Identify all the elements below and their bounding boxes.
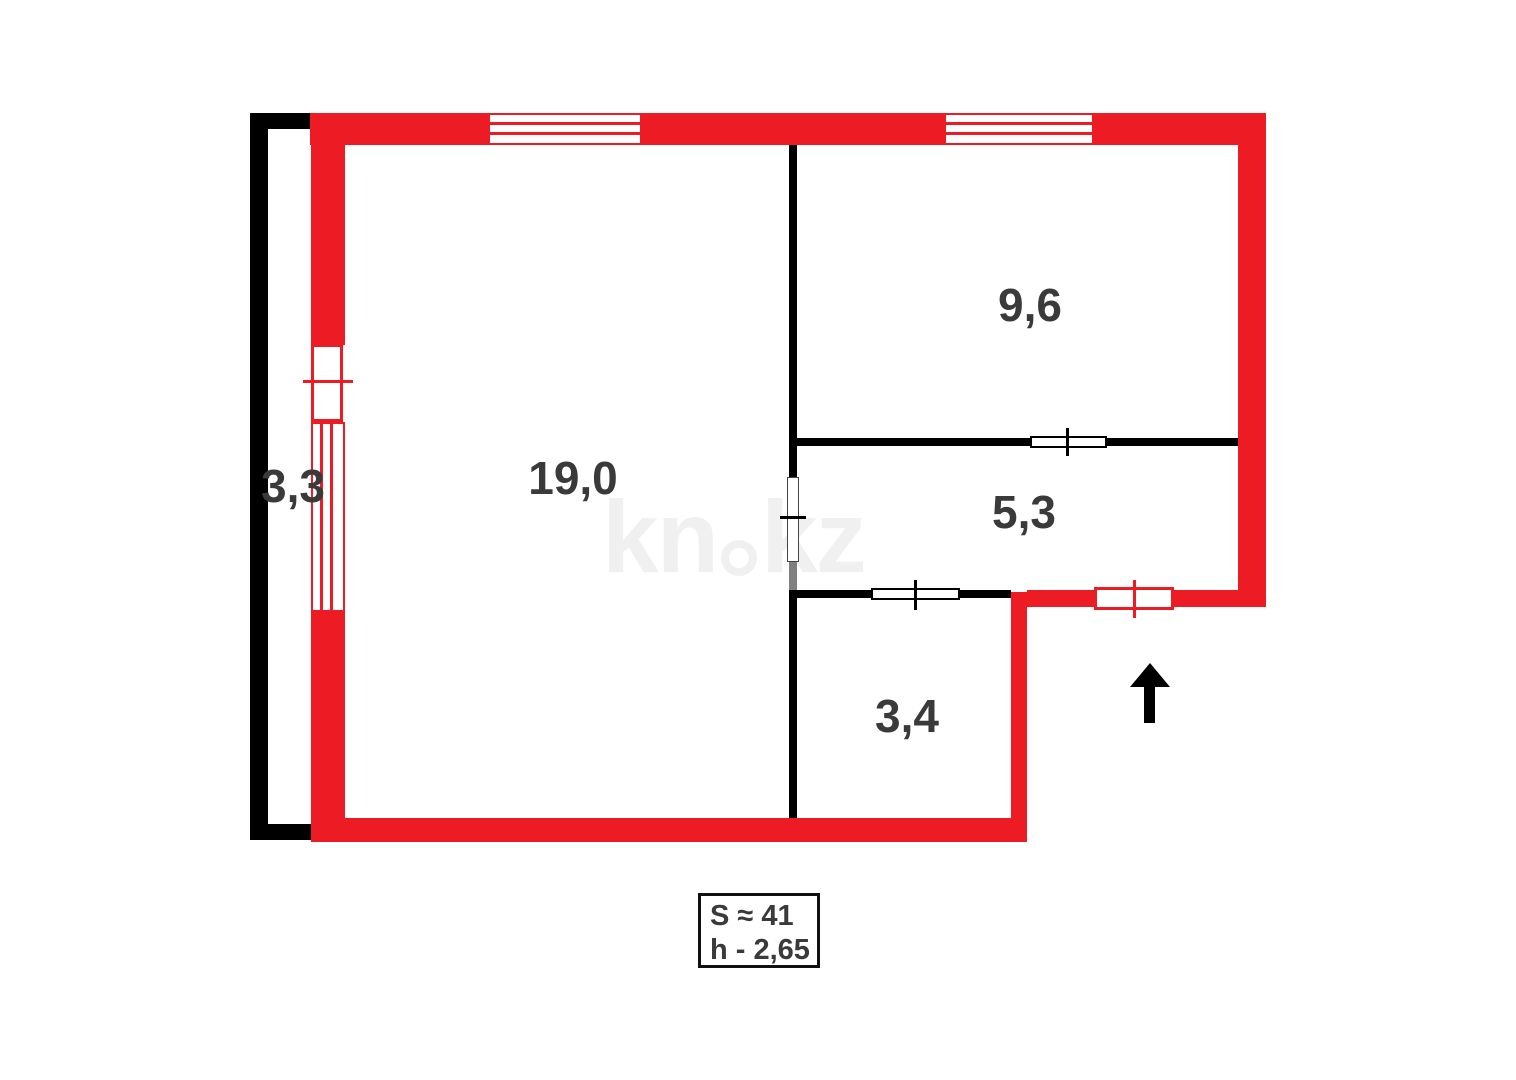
watermark: kn kz (602, 498, 865, 578)
floor-plan: kn kz 3,3 19,0 9,6 5,3 3,4 S ≈ 41 (0, 0, 1516, 1080)
window-icon-left (311, 422, 345, 612)
ceiling-height-label: h - 2,65 (710, 933, 817, 967)
entrance-door-tick-icon (1133, 580, 1136, 618)
inner-wall-vertical-lower (789, 590, 797, 818)
outer-wall-left-upper (311, 113, 345, 345)
room-label-balcony: 3,3 (261, 459, 325, 513)
window-icon-top-right (944, 113, 1094, 145)
room-label-hallway: 5,3 (992, 485, 1056, 539)
entrance-arrow-icon (1130, 663, 1170, 723)
plan-info-box: S ≈ 41 h - 2,65 (698, 893, 820, 968)
room-label-entry: 3,4 (875, 689, 939, 743)
inner-wall-vertical-upper (789, 145, 797, 477)
outer-wall-bottom (311, 818, 1027, 842)
wall-segment-gray (789, 562, 797, 590)
balcony-door-tick-icon (303, 380, 353, 383)
entrance-arrow-shaft (1144, 685, 1155, 723)
inner-wall-bedroom-hall (797, 438, 1238, 446)
room-label-living-room: 19,0 (528, 451, 618, 505)
room-label-bedroom: 9,6 (998, 278, 1062, 332)
watermark-right: kz (761, 498, 865, 578)
balcony-wall-top (250, 113, 310, 129)
outer-wall-right (1238, 113, 1266, 607)
outer-wall-top (310, 113, 1266, 145)
outer-wall-left-lower (311, 612, 345, 842)
entrance-arrow-head (1130, 663, 1170, 687)
door-tick-icon-living-hall (780, 516, 806, 519)
watermark-left: kn (602, 498, 717, 578)
balcony-wall-bottom (250, 824, 311, 840)
window-icon-top-left (488, 113, 642, 145)
watermark-dot-icon (721, 540, 757, 576)
door-tick-icon-entry (914, 580, 917, 610)
balcony-door-icon (311, 344, 343, 422)
door-tick-icon-bedroom (1066, 428, 1069, 456)
door-opening-living-hall (787, 477, 799, 562)
outer-wall-entry-right (1011, 592, 1027, 842)
total-area-label: S ≈ 41 (710, 899, 817, 933)
